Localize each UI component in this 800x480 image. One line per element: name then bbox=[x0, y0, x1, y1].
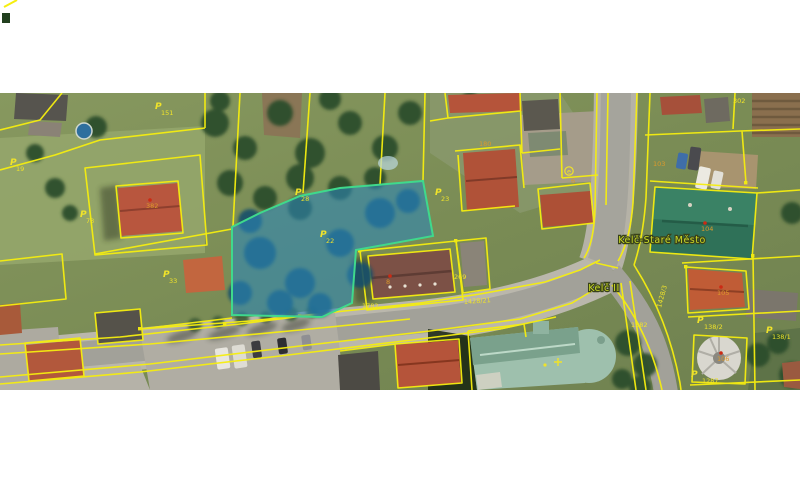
region-name-label: Kelč-Staré Město bbox=[618, 235, 706, 246]
parcel-number-label: 138/1 bbox=[772, 333, 791, 341]
roof-fragment bbox=[2, 13, 10, 23]
map-viewport[interactable]: P151P19P73P33P28P22P23P138/2P138/1P12871… bbox=[0, 93, 800, 390]
parcel-number-label: 23 bbox=[441, 195, 449, 203]
parcel-number-label: 73 bbox=[86, 217, 94, 225]
north-road bbox=[602, 93, 616, 263]
pool bbox=[76, 123, 92, 139]
parcel-number-label: 1287 bbox=[702, 377, 719, 385]
circled-e-symbol: e bbox=[567, 167, 571, 175]
parcel-number-label: 19 bbox=[16, 165, 24, 173]
map-point bbox=[543, 363, 546, 366]
parcel-number-label: 1382 bbox=[631, 321, 648, 329]
boundary-line bbox=[4, 0, 17, 7]
parcel-flag-icon: P bbox=[697, 316, 704, 326]
aerial-map[interactable]: P151P19P73P33P28P22P23P138/2P138/1P12871… bbox=[0, 93, 800, 390]
parcel-flag-icon: P bbox=[691, 370, 698, 380]
parcel-number-label: 1782 bbox=[362, 302, 379, 310]
parcel-number-label: 28 bbox=[301, 195, 309, 203]
building-number-label: 104 bbox=[701, 225, 713, 233]
parcel-number-label: 302 bbox=[733, 97, 745, 105]
region-name-label: Kelč II bbox=[588, 283, 620, 294]
house-roof bbox=[183, 256, 225, 293]
building-number-label: 103 bbox=[653, 160, 665, 168]
map-screenshot: { "map_view": { "region_labels": [ {"id"… bbox=[0, 0, 800, 480]
parcel-number-label: 22 bbox=[326, 237, 334, 245]
parcel-number-label: 151 bbox=[161, 109, 173, 117]
parcel-number-label: 138/2 bbox=[704, 323, 723, 331]
parcel-number-label: 269 bbox=[454, 273, 466, 281]
building-number-label: 180 bbox=[479, 140, 491, 148]
parcel-number-label: 33 bbox=[169, 277, 177, 285]
building-number-label: 105 bbox=[717, 289, 729, 297]
building-number-label: 6 bbox=[571, 177, 575, 185]
building-number-label: 8 bbox=[386, 278, 390, 286]
building-number-label: 382 bbox=[146, 202, 158, 210]
apartment-building bbox=[368, 249, 455, 299]
photo-artifact bbox=[378, 156, 398, 170]
map-edge-fragment bbox=[0, 0, 22, 28]
building-number-label: 106 bbox=[717, 355, 729, 363]
